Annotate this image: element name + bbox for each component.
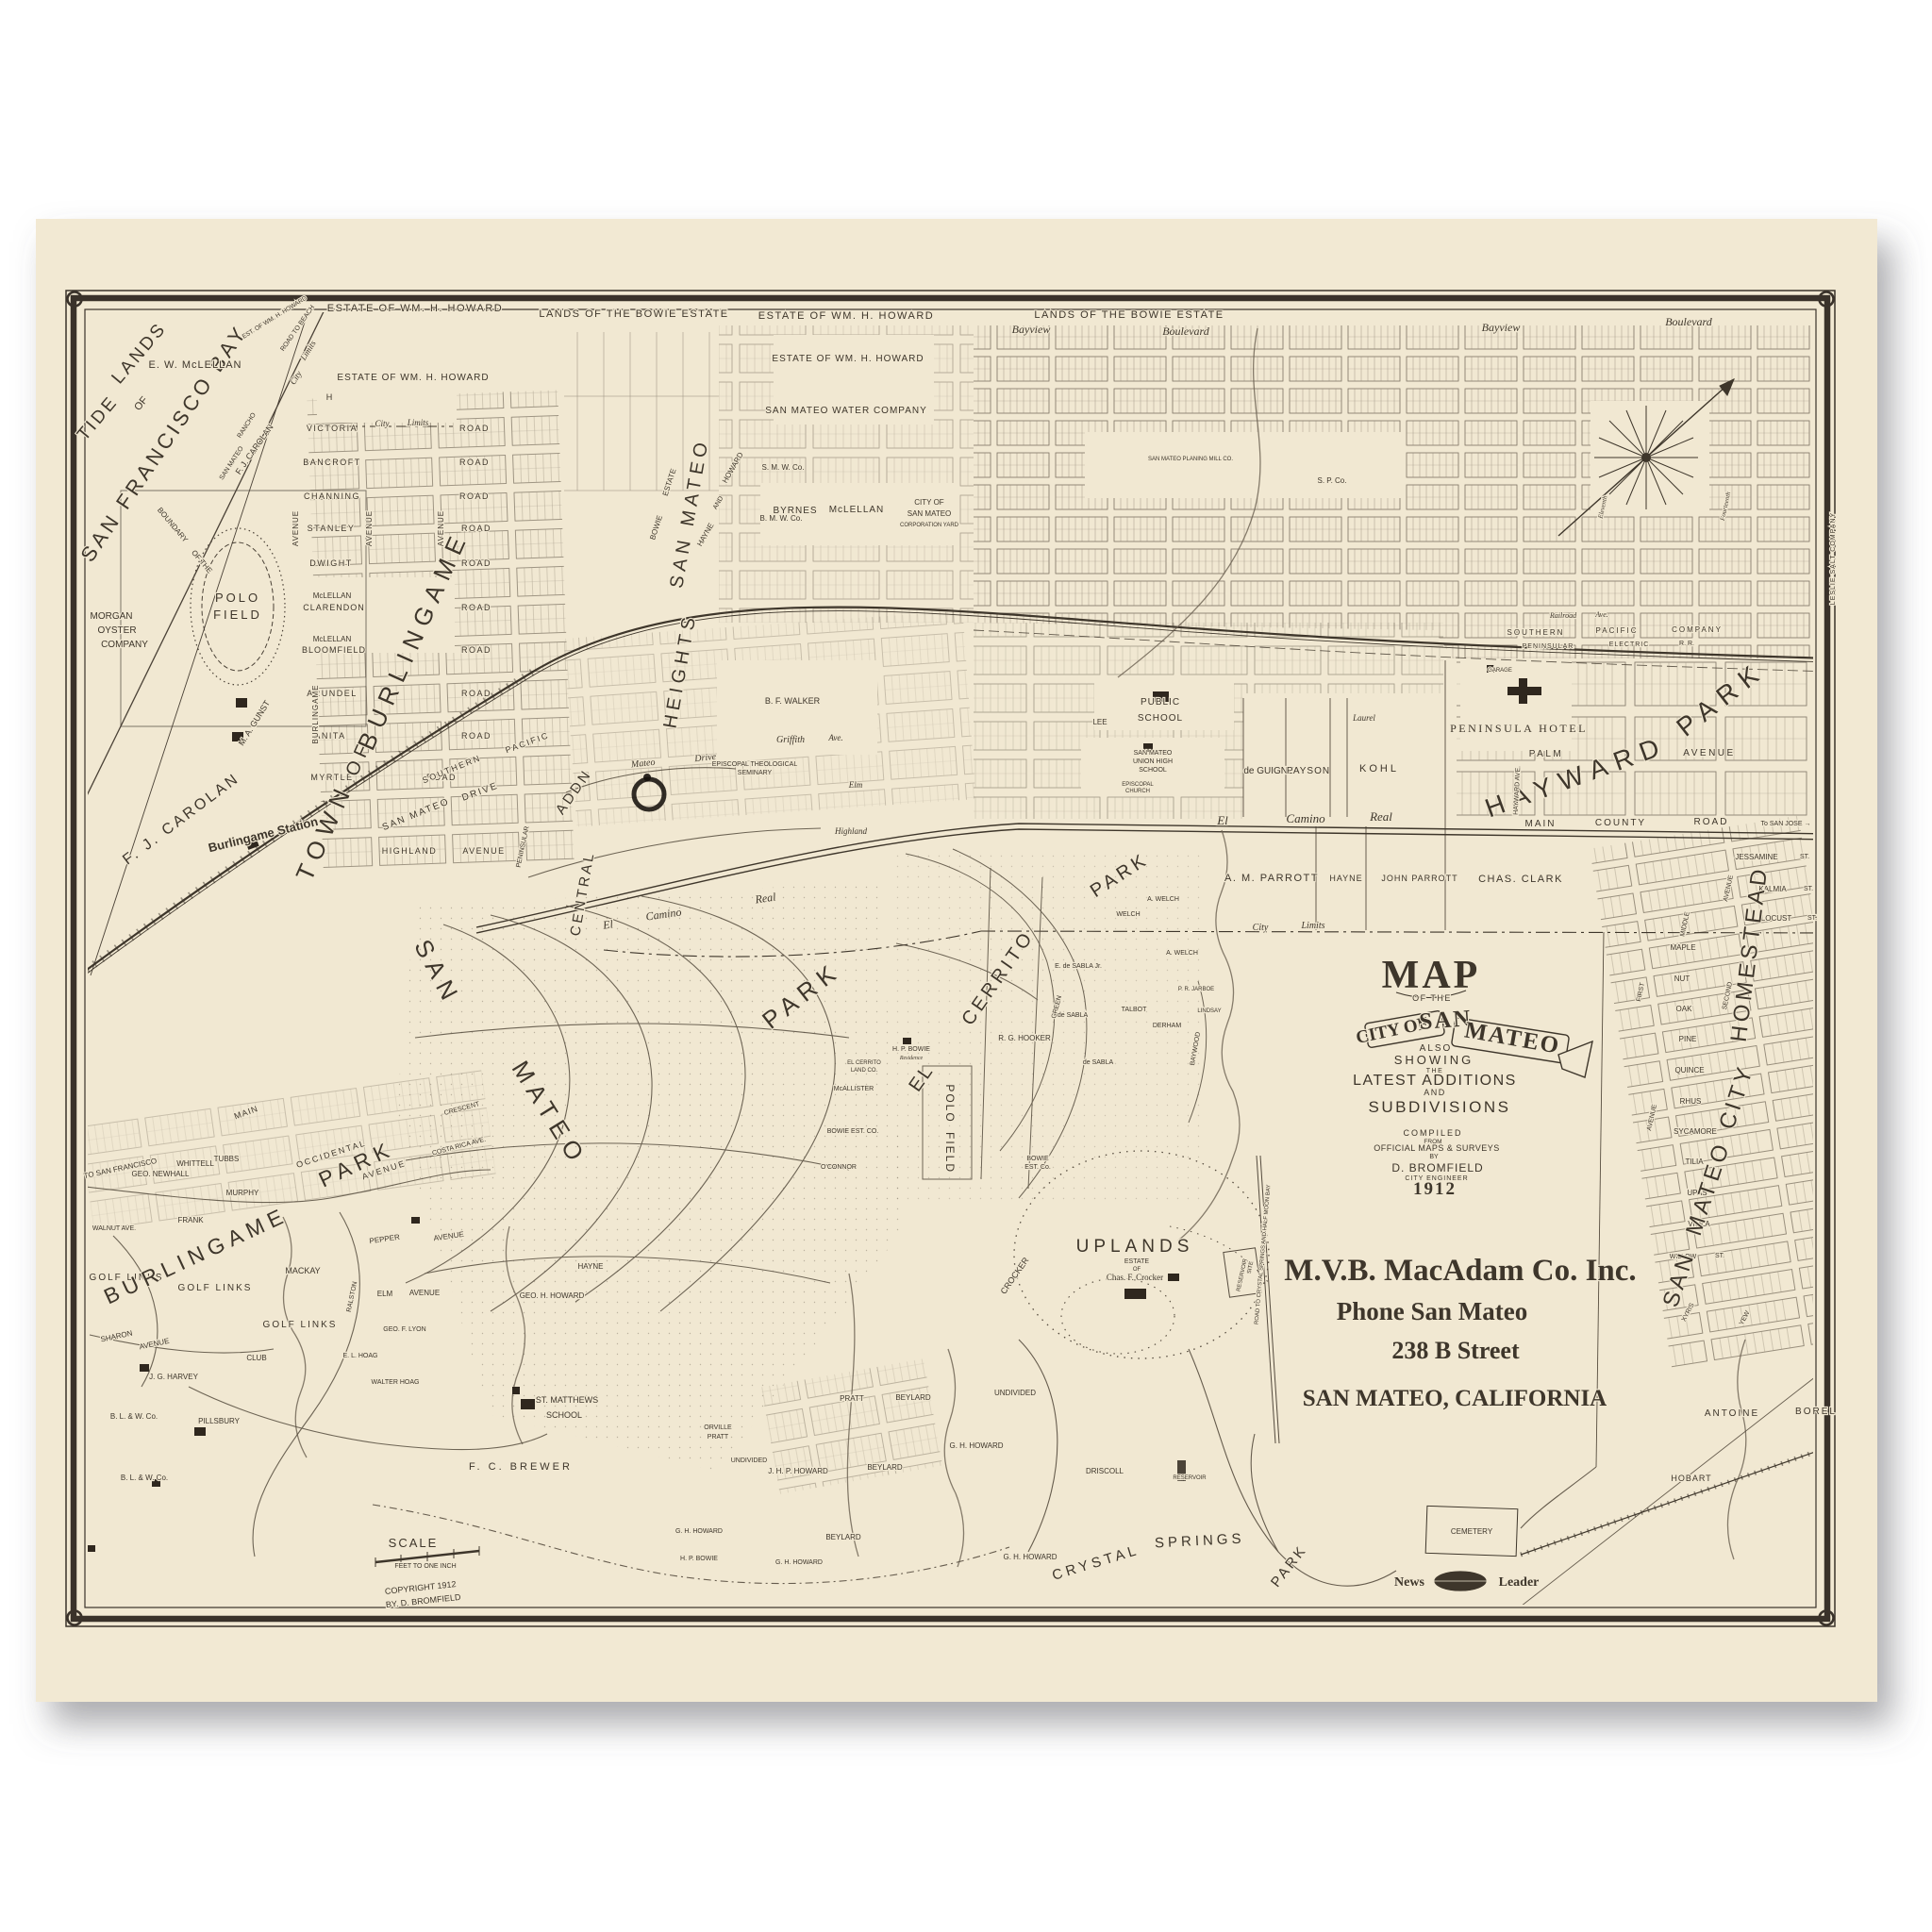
el-camino-real-label: El <box>1216 813 1228 827</box>
map-label: McALLISTER <box>834 1086 874 1092</box>
map-label: MORGAN <box>91 611 133 622</box>
map-label: COUNTY <box>1595 818 1646 828</box>
map-label: GOLF LINKS <box>178 1283 253 1293</box>
map-label: ELM <box>377 1290 393 1298</box>
map-label: O'CONNOR <box>821 1164 857 1171</box>
map-label: Bayview <box>1012 323 1051 336</box>
map-label: A. M. PARROTT <box>1224 873 1319 884</box>
map-label: RESERVOIR <box>1173 1475 1207 1481</box>
map-label: Ave. <box>1594 610 1608 619</box>
map-label: BOWIE EST. CO. <box>827 1128 879 1135</box>
map-label: Elm <box>848 780 863 790</box>
map-label: CHAS. CLARK <box>1478 874 1563 885</box>
map-label: E. L. HOAG <box>343 1353 378 1359</box>
map-label: EPISCOPAL <box>1122 782 1154 788</box>
map-label: DRISCOLL <box>1086 1467 1124 1475</box>
map-label: SAN MATEO <box>1134 750 1173 757</box>
map-label: Real <box>1369 809 1392 824</box>
map-label: AVENUE <box>409 1289 440 1297</box>
map-label: DWIGHT <box>309 558 353 568</box>
map-label: Camino <box>1286 811 1325 825</box>
map-label: AVENUE <box>291 510 300 546</box>
map-label: B. F. WALKER <box>765 696 821 706</box>
map-label: BOWIE <box>1026 1156 1049 1162</box>
map-label: SAN MATEO WATER COMPANY <box>765 406 927 416</box>
map-label: Boulevard <box>1665 315 1713 328</box>
map-label: BANCROFT <box>303 458 361 467</box>
map-label: FIELD <box>943 1132 957 1174</box>
map-label: Griffith <box>776 735 805 745</box>
map-label: CLUB <box>246 1354 266 1362</box>
map-label: OF THE <box>1412 993 1452 1003</box>
map-label: HAYNE <box>1329 874 1362 883</box>
map-label: G. H. HOWARD <box>675 1528 723 1535</box>
map-label: TILIA <box>1685 1158 1704 1166</box>
map-label: COMPILED <box>1403 1128 1462 1138</box>
map-label: ANTOINE <box>1705 1408 1759 1419</box>
map-label: CITY OF <box>914 498 944 507</box>
map-label: PUBLIC <box>1141 697 1180 708</box>
map-label: D. BROMFIELD <box>1391 1161 1483 1174</box>
map-label: OYSTER <box>97 625 136 636</box>
map-label: P. R. JARBOE <box>1178 987 1214 992</box>
map-label: H <box>326 392 333 402</box>
map-label: A. WELCH <box>1166 950 1198 957</box>
map-label: PALM <box>1529 749 1564 759</box>
map-label: To SAN JOSE → <box>1761 821 1811 827</box>
news-leader-label: News <box>1394 1575 1424 1590</box>
map-label: LINDSAY <box>1197 1008 1221 1014</box>
cemetery-label: CEMETERY <box>1451 1527 1493 1536</box>
cartouche-year: 1912 <box>1413 1179 1457 1199</box>
map-label: Bayview <box>1482 321 1521 334</box>
map-label: STANLEY <box>308 524 356 533</box>
news-leader-globe <box>1434 1571 1487 1591</box>
cartouche-map: MAP <box>1382 954 1481 997</box>
map-label: McLELLAN <box>829 505 885 515</box>
map-label: OAK <box>1676 1005 1693 1013</box>
map-label: AVENUE <box>462 846 505 856</box>
map-label: ROAD <box>461 645 491 655</box>
map-label: Laurel <box>1352 713 1375 723</box>
map-label: Highland <box>834 826 868 836</box>
map-label: ROAD <box>459 458 490 467</box>
map-label: ORVILLE <box>704 1424 732 1431</box>
map-label: SEMINARY <box>738 770 773 776</box>
map-label: RHUS <box>1680 1097 1702 1106</box>
map-label: CHANNING <box>304 491 360 501</box>
map-label: HOBART <box>1671 1474 1711 1483</box>
map-label: G. H. HOWARD <box>949 1441 1003 1450</box>
map-label: ST. <box>1715 1253 1724 1259</box>
map-label: LAND CO. <box>851 1068 878 1074</box>
map-label: A. WELCH <box>1147 896 1179 903</box>
map-label: ST. <box>1807 915 1817 922</box>
map-label: FEET TO ONE INCH <box>394 1563 456 1570</box>
map-label: SUBDIVISIONS <box>1369 1098 1511 1116</box>
map-canvas: Map of the City of San Mateo - 1912 <box>0 0 1932 1932</box>
map-label: BEYLARD <box>895 1393 931 1402</box>
map-label: MAIN <box>1525 819 1557 829</box>
map-label: SHOWING <box>1394 1053 1474 1067</box>
map-label: de SABLA <box>1083 1059 1114 1066</box>
map-label: PILLSBURY <box>198 1417 241 1425</box>
map-label: ST. MATTHEWS <box>536 1395 598 1405</box>
map-label: Leader <box>1499 1575 1540 1590</box>
map-label: BEYLARD <box>825 1533 861 1541</box>
map-label: NUT <box>1674 974 1690 983</box>
map-label: F. C. BREWER <box>469 1461 573 1473</box>
map-label: Limits <box>1300 921 1324 931</box>
product-photo: Map of the City of San Mateo - 1912 <box>0 0 1932 1932</box>
map-label: MAPLE <box>1670 943 1695 952</box>
scale-label: SCALE <box>389 1536 439 1550</box>
map-label: GEO. H. HOWARD <box>520 1291 585 1300</box>
map-label: G. H. HOWARD <box>775 1559 823 1566</box>
map-label: ROAD <box>461 524 491 533</box>
map-label: J. H. P. HOWARD <box>768 1467 828 1475</box>
map-label: EST. Co. <box>1024 1164 1051 1171</box>
map-label: FIELD <box>213 608 262 622</box>
map-label: JOHN PARROTT <box>1381 874 1457 883</box>
map-label: ROAD <box>461 731 491 741</box>
advertiser-name: M.V.B. MacAdam Co. Inc. <box>1284 1254 1636 1288</box>
map-label: McLELLAN <box>313 591 352 600</box>
map-label: GEO. F. LYON <box>383 1326 425 1333</box>
map-label: WELCH <box>1116 911 1140 918</box>
map-label: WALNUT AVE. <box>92 1225 136 1232</box>
map-label: R. G. HOOKER <box>998 1034 1051 1042</box>
map-label: G. H. HOWARD <box>1003 1553 1057 1561</box>
map-label: SCHOOL <box>1139 767 1167 774</box>
peninsula-hotel-label: PENINSULA HOTEL <box>1450 722 1588 735</box>
map-label: OFFICIAL MAPS & SURVEYS <box>1374 1143 1500 1153</box>
map-label: ESTATE OF WM. H. HOWARD <box>337 373 489 383</box>
map-label: ST. <box>1804 886 1813 892</box>
map-label: de SABLA <box>1058 1012 1089 1019</box>
map-label: CORPORATION YARD <box>900 523 959 528</box>
map-label: LEE <box>1092 718 1107 726</box>
map-label: Chas. F. Crocker <box>1107 1273 1163 1282</box>
map-label: HIGHLAND <box>382 846 438 856</box>
map-label: SOUTHERN <box>1507 628 1565 637</box>
map-label: ROAD <box>461 689 491 698</box>
map-label: FRANK <box>177 1216 204 1224</box>
map-label: EL CERRITO <box>847 1060 881 1066</box>
map-label: H. P. BOWIE <box>892 1046 930 1053</box>
map-label: AVENUE <box>1683 748 1735 758</box>
uplands-label: UPLANDS <box>1076 1237 1194 1257</box>
map-label: TALBOT <box>1122 1007 1147 1013</box>
map-label: CHURCH <box>1125 789 1150 794</box>
map-label: BY <box>1429 1154 1439 1160</box>
map-label: UNION HIGH <box>1133 758 1173 765</box>
map-label: S. P. Co. <box>1318 476 1347 485</box>
map-label: PENINSULAR <box>1523 643 1574 650</box>
map-label: ROAD <box>461 558 491 568</box>
map-label: City <box>375 419 390 428</box>
map-label: QUINCE <box>1674 1066 1704 1074</box>
map-label: SCHOOL <box>546 1410 582 1420</box>
map-label: SAN MATEO <box>908 509 952 518</box>
map-label: ST. <box>1800 854 1809 860</box>
map-label: COMPANY <box>101 640 148 650</box>
map-label: HAYNE <box>578 1262 604 1271</box>
map-label: ROAD <box>459 424 490 433</box>
map-label: B. L. & W. Co. <box>121 1474 168 1482</box>
map-label: City <box>1253 923 1269 933</box>
map-label: ESTATE OF WM. H. HOWARD <box>758 310 934 322</box>
map-label: BYRNES <box>773 506 817 516</box>
map-label: PAYSON <box>1287 766 1330 776</box>
map-label: E. de SABLA Jr. <box>1055 963 1102 970</box>
map-label: UNDIVIDED <box>731 1457 768 1464</box>
map-label: Railroad <box>1549 611 1577 620</box>
map-label: PRATT <box>708 1434 729 1441</box>
map-label: VICTORIA <box>307 424 358 433</box>
map-label: ESTATE <box>1124 1258 1150 1265</box>
map-label: J. G. HARVEY <box>149 1373 199 1381</box>
map-label: E. W. McLELLAN <box>149 359 242 371</box>
map-label: ESTATE OF WM. H. HOWARD <box>772 354 924 364</box>
map-label: LESLIE SALT COMPANY <box>1830 512 1837 605</box>
map-label: JESSAMINE <box>1735 853 1777 861</box>
map-label: LANDS OF THE BOWIE ESTATE <box>1034 309 1224 321</box>
map-label: ROAD <box>459 491 490 501</box>
map-label: LANDS OF THE BOWIE ESTATE <box>539 308 728 320</box>
map-label: COMPANY <box>1672 625 1723 634</box>
map-label: GARAGE <box>1488 668 1512 674</box>
map-label: KOHL <box>1359 763 1399 774</box>
map-label: BEYLARD <box>867 1463 903 1472</box>
map-label: DERHAM <box>1153 1023 1182 1029</box>
advertiser-phone: Phone San Mateo <box>1337 1297 1528 1325</box>
map-label: LATEST ADDITIONS <box>1353 1073 1517 1089</box>
map-label: AND <box>1424 1088 1446 1097</box>
map-label: PINE <box>1679 1035 1697 1043</box>
map-label: Ave. <box>827 733 842 742</box>
map-label: Limits <box>407 418 429 427</box>
map-label: B. L. & W. Co. <box>110 1412 158 1421</box>
map-label: MURPHY <box>226 1189 259 1197</box>
map-label: EPISCOPAL THEOLOGICAL <box>712 761 798 768</box>
map-label: H. P. BOWIE <box>680 1556 718 1562</box>
map-label: GEO. NEWHALL <box>132 1170 190 1178</box>
map-label: McLELLAN <box>313 635 352 643</box>
map-label: SCHOOL <box>1138 713 1183 724</box>
map-label: R. R. <box>1679 641 1694 647</box>
map-label: WALTER HOAG <box>372 1379 420 1386</box>
polo-field-label: POLO <box>215 591 260 605</box>
map-label: Boulevard <box>1162 325 1210 338</box>
map-label: BURLINGAME <box>311 685 320 744</box>
map-label: PRATT <box>840 1394 864 1403</box>
map-label: AVENUE <box>365 510 374 546</box>
map-label: ESTATE OF WM. H. HOWARD <box>327 303 503 314</box>
map-label: PACIFIC <box>1596 626 1639 635</box>
map-label: SAN MATEO PLANING MILL CO. <box>1148 457 1233 462</box>
map-label: BLOOMFIELD <box>302 645 366 655</box>
map-label: UNDIVIDED <box>994 1389 1036 1397</box>
map-label: TUBBS <box>214 1155 240 1163</box>
map-label: S. M. W. Co. <box>762 463 805 472</box>
map-label: POLO <box>943 1084 957 1123</box>
map-label: ROAD <box>1694 817 1729 827</box>
advertiser-address: 238 B Street <box>1391 1337 1520 1364</box>
map-label: GOLF LINKS <box>263 1320 338 1330</box>
map-label: CLARENDON <box>303 603 365 612</box>
map-label: Residence <box>899 1056 924 1061</box>
map-label: MACKAY <box>285 1266 320 1275</box>
map-label: ELECTRIC <box>1609 641 1650 648</box>
map-label: WHITTELL <box>176 1159 214 1168</box>
map-label: ROAD <box>461 603 491 612</box>
map-label: SYCAMORE <box>1674 1127 1717 1136</box>
advertiser-city: SAN MATEO, CALIFORNIA <box>1303 1386 1607 1411</box>
map-label: BOREL <box>1795 1407 1837 1417</box>
